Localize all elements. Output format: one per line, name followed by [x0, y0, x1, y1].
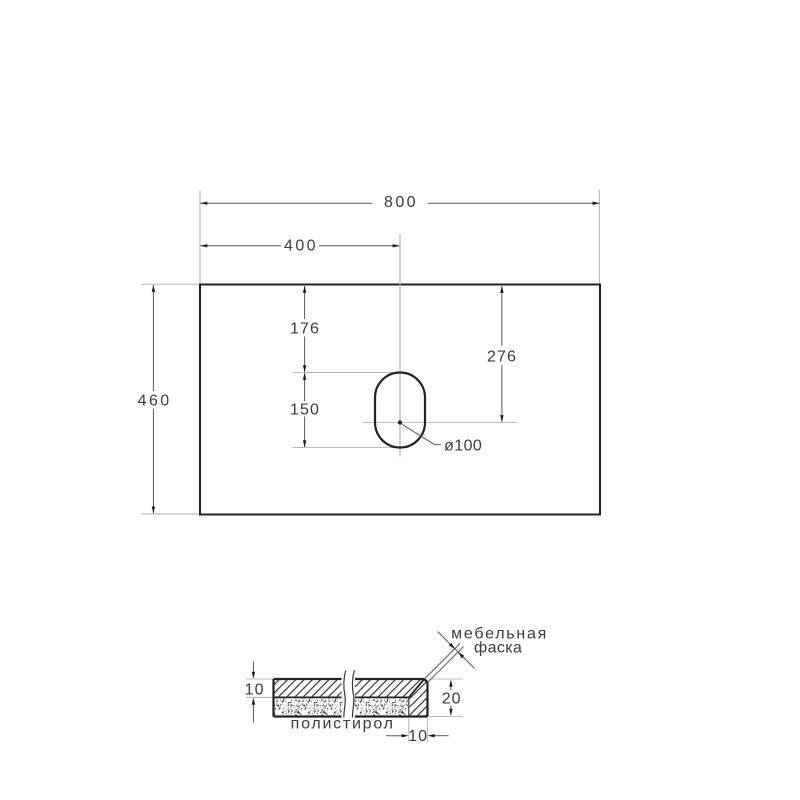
svg-text:400: 400	[284, 238, 318, 255]
svg-text:176: 176	[290, 321, 320, 338]
svg-text:800: 800	[384, 194, 418, 211]
svg-text:ø100: ø100	[444, 438, 482, 455]
svg-text:150: 150	[290, 402, 320, 419]
svg-text:10: 10	[408, 728, 428, 745]
svg-text:10: 10	[245, 681, 265, 698]
svg-text:460: 460	[138, 393, 172, 410]
svg-text:20: 20	[442, 691, 462, 708]
svg-text:фаска: фаска	[474, 639, 522, 656]
svg-text:полистирол: полистирол	[291, 715, 395, 732]
svg-text:276: 276	[487, 348, 517, 365]
